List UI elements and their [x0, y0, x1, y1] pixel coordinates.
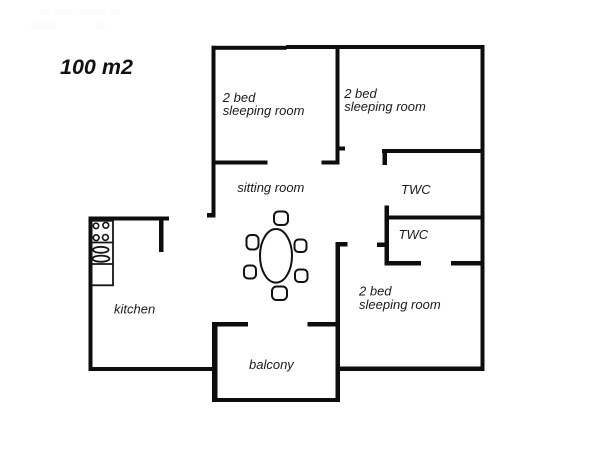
svg-text:sleeping room: sleeping room — [223, 103, 305, 118]
svg-text:sitting room: sitting room — [237, 180, 304, 195]
svg-text:TWC: TWC — [399, 227, 429, 242]
svg-text:100 m2: 100 m2 — [60, 55, 133, 79]
svg-text:sleeping room: sleeping room — [359, 297, 441, 312]
svg-text:kitchen: kitchen — [114, 302, 155, 317]
svg-text:sleeping room: sleeping room — [344, 99, 426, 114]
svg-text:TWC: TWC — [401, 182, 431, 197]
svg-text:balcony: balcony — [249, 357, 295, 372]
